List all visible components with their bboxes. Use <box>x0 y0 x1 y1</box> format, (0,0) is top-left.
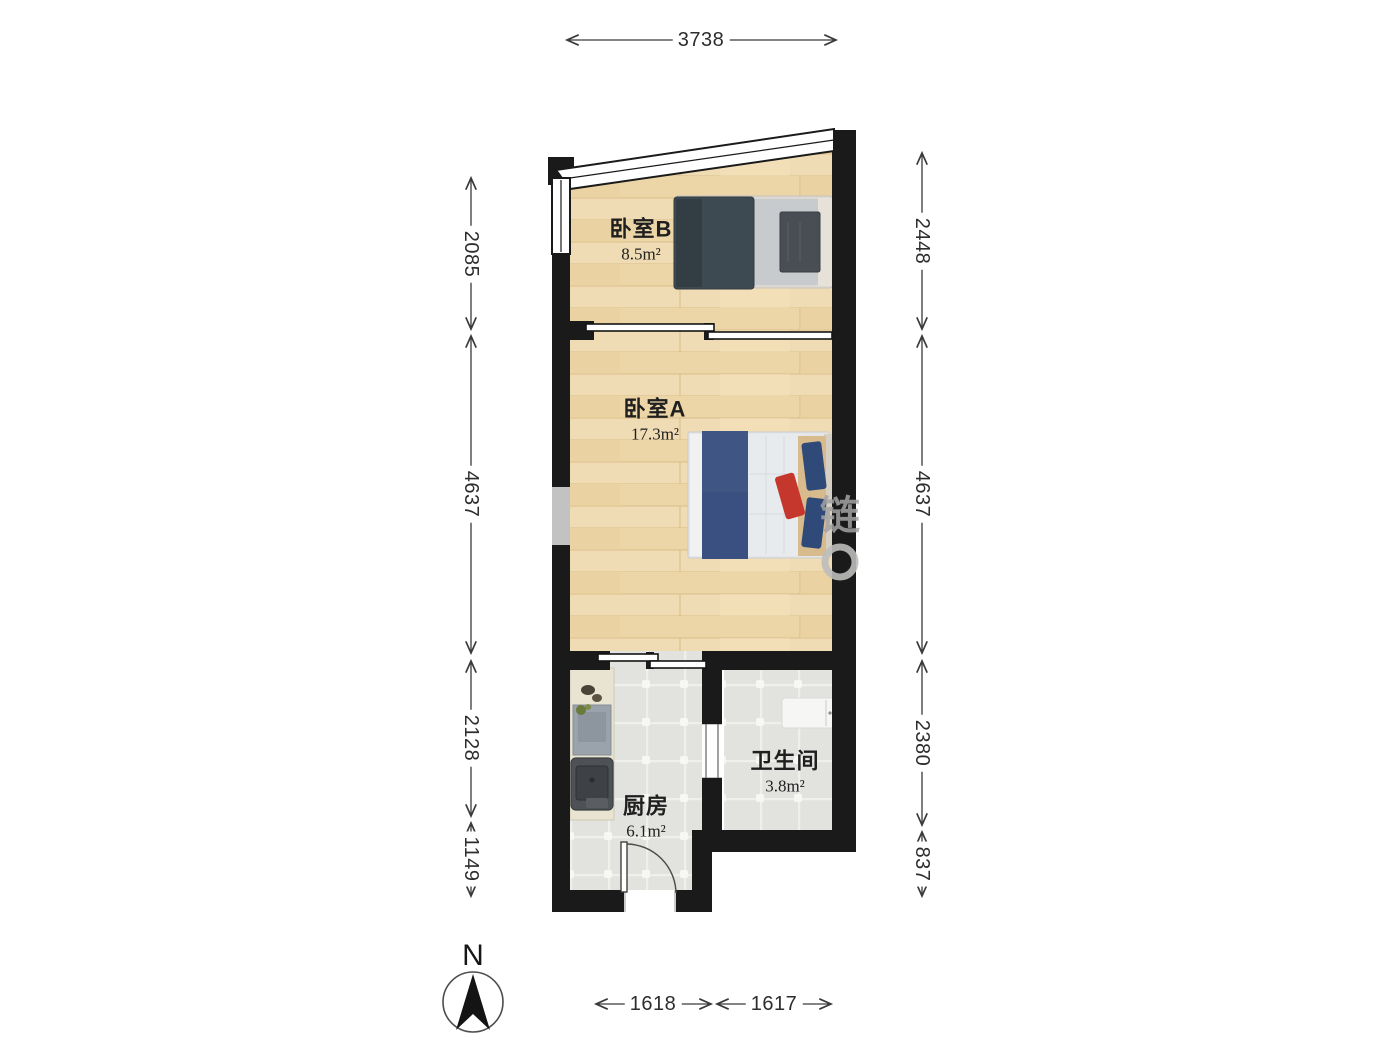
dim-right-3: 2380 <box>912 715 932 772</box>
dim-bottom-2: 1617 <box>746 994 803 1014</box>
dim-bottom-1: 1618 <box>625 994 682 1014</box>
dim-left-3: 2128 <box>461 710 481 767</box>
door-leaf <box>621 842 627 892</box>
bathroom-door <box>702 722 722 780</box>
room-area: 17.3m² <box>624 426 687 443</box>
wall-niche <box>552 487 570 545</box>
room-name: 厨房 <box>623 794 669 818</box>
dim-right-4: 837 <box>912 842 932 887</box>
room-label-bathroom: 卫生间 3.8m² <box>750 749 819 794</box>
room-label-kitchen: 厨房 6.1m² <box>623 794 669 839</box>
room-label-bedroom-a: 卧室A 17.3m² <box>624 397 687 442</box>
single-bed <box>674 196 832 289</box>
washing-machine <box>782 698 834 728</box>
room-name: 卫生间 <box>750 749 819 773</box>
watermark-text: 链 <box>820 483 860 541</box>
floorplan-canvas: 3738 2085 4637 2128 1149 2448 4637 2380 … <box>0 0 1400 1050</box>
room-label-bedroom-b: 卧室B 8.5m² <box>610 217 673 262</box>
room-area: 3.8m² <box>750 778 819 795</box>
dim-right-1: 2448 <box>912 213 932 270</box>
decor <box>581 685 595 695</box>
compass <box>443 972 503 1032</box>
dim-top: 3738 <box>673 30 730 50</box>
room-name: 卧室A <box>624 397 687 421</box>
dim-left-4: 1149 <box>461 831 481 886</box>
compass-north-label: N <box>462 939 484 973</box>
dim-left-1: 2085 <box>461 226 481 283</box>
double-bed <box>688 431 832 559</box>
room-area: 6.1m² <box>623 823 669 840</box>
floorplan-drawing <box>0 0 1400 1050</box>
room-name: 卧室B <box>610 217 673 241</box>
room-area: 8.5m² <box>610 246 673 263</box>
kitchen-counter <box>570 668 614 820</box>
dim-right-2: 4637 <box>912 466 932 523</box>
dim-left-2: 4637 <box>461 466 481 523</box>
